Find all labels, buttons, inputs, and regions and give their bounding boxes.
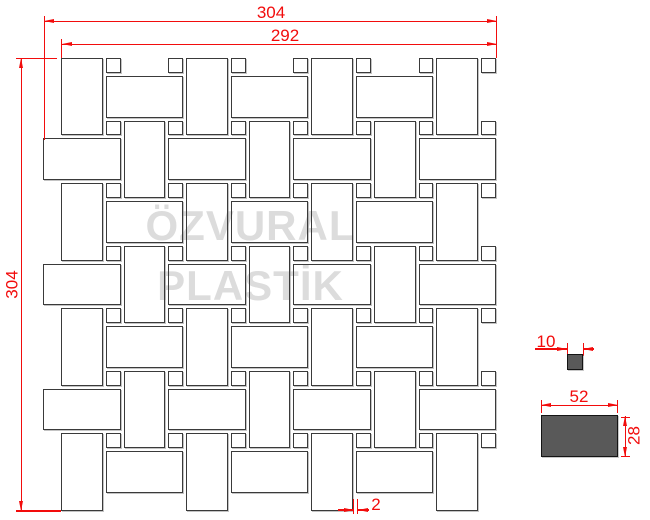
horizontal-tile bbox=[419, 389, 496, 431]
dot-tile bbox=[168, 58, 183, 73]
dot-tile bbox=[106, 58, 121, 73]
vertical-tile bbox=[124, 121, 166, 198]
dot-tile bbox=[106, 371, 121, 386]
dot-tile bbox=[231, 246, 246, 261]
extension-line bbox=[61, 39, 62, 58]
horizontal-tile bbox=[168, 138, 245, 180]
horizontal-tile bbox=[231, 76, 308, 118]
vertical-tile bbox=[436, 58, 478, 135]
horizontal-tile bbox=[293, 138, 370, 180]
extension-line bbox=[16, 58, 57, 59]
dot-tile bbox=[293, 371, 308, 386]
chip-shape bbox=[541, 415, 618, 457]
vertical-tile bbox=[436, 308, 478, 385]
arrowhead-right-icon bbox=[487, 42, 497, 46]
vertical-tile bbox=[186, 58, 228, 135]
horizontal-tile bbox=[231, 326, 308, 368]
dot-tile bbox=[231, 308, 246, 323]
dot-tile bbox=[419, 308, 434, 323]
horizontal-tile bbox=[356, 451, 433, 493]
horizontal-tile bbox=[293, 389, 370, 431]
dot-tile bbox=[293, 246, 308, 261]
extension-line bbox=[16, 510, 61, 511]
vertical-tile bbox=[374, 246, 416, 323]
vertical-tile bbox=[61, 58, 103, 135]
arrowhead-left-icon bbox=[62, 42, 72, 46]
dot-tile bbox=[168, 246, 183, 261]
dot-tile bbox=[168, 433, 183, 448]
horizontal-tile bbox=[293, 264, 370, 306]
dim-chip-height-label: 28 bbox=[626, 416, 643, 456]
dot-tile bbox=[231, 121, 246, 136]
vertical-tile bbox=[249, 246, 291, 323]
dot-tile bbox=[231, 371, 246, 386]
vertical-tile bbox=[311, 433, 353, 510]
horizontal-tile bbox=[106, 451, 183, 493]
vertical-tile bbox=[436, 433, 478, 510]
horizontal-tile bbox=[168, 264, 245, 306]
arrowhead-left-icon bbox=[358, 508, 368, 512]
dot-tile bbox=[481, 183, 496, 198]
dot-tile bbox=[356, 183, 371, 198]
horizontal-tile bbox=[419, 138, 496, 180]
dot-tile bbox=[106, 433, 121, 448]
vertical-tile bbox=[311, 183, 353, 260]
dot-tile bbox=[293, 308, 308, 323]
vertical-tile bbox=[186, 183, 228, 260]
dot-tile bbox=[481, 246, 496, 261]
vertical-tile bbox=[249, 121, 291, 198]
dot-tile bbox=[356, 371, 371, 386]
dim-overall-width-label: 304 bbox=[246, 4, 296, 21]
dot-tile bbox=[168, 371, 183, 386]
dot-tile bbox=[481, 433, 496, 448]
extension-line bbox=[496, 16, 497, 58]
arrowhead-right-icon bbox=[344, 508, 354, 512]
dot-tile bbox=[419, 371, 434, 386]
dot-tile bbox=[419, 183, 434, 198]
horizontal-tile bbox=[356, 201, 433, 243]
vertical-tile bbox=[186, 308, 228, 385]
horizontal-tile bbox=[168, 389, 245, 431]
dot-tile bbox=[293, 433, 308, 448]
dot-tile bbox=[356, 246, 371, 261]
dot-chip-shape bbox=[567, 354, 583, 370]
arrowhead-right-icon bbox=[608, 403, 618, 407]
dot-tile bbox=[356, 433, 371, 448]
dot-tile bbox=[293, 183, 308, 198]
vertical-tile bbox=[374, 371, 416, 448]
dot-tile bbox=[419, 246, 434, 261]
horizontal-tile bbox=[356, 76, 433, 118]
extension-line bbox=[621, 456, 631, 457]
vertical-tile bbox=[124, 371, 166, 448]
dot-tile bbox=[481, 308, 496, 323]
dot-tile bbox=[481, 121, 496, 136]
arrowhead-right-icon bbox=[487, 19, 497, 23]
arrowhead-left-icon bbox=[541, 403, 551, 407]
dot-tile bbox=[231, 433, 246, 448]
dot-tile bbox=[106, 121, 121, 136]
extension-line bbox=[353, 499, 354, 514]
dim-chip-width-label: 52 bbox=[566, 388, 592, 405]
dot-tile bbox=[419, 58, 434, 73]
horizontal-tile bbox=[231, 201, 308, 243]
extension-line bbox=[44, 16, 45, 140]
horizontal-tile bbox=[43, 138, 120, 180]
vertical-tile bbox=[61, 433, 103, 510]
vertical-tile bbox=[124, 246, 166, 323]
dim-inner-width-label: 292 bbox=[260, 27, 310, 44]
dot-tile bbox=[419, 433, 434, 448]
vertical-tile bbox=[311, 308, 353, 385]
extension-line bbox=[357, 499, 358, 514]
dim-dot-size-label: 10 bbox=[533, 333, 559, 350]
vertical-tile bbox=[374, 121, 416, 198]
horizontal-tile bbox=[106, 201, 183, 243]
horizontal-tile bbox=[43, 264, 120, 306]
dot-tile bbox=[356, 58, 371, 73]
dot-tile bbox=[106, 308, 121, 323]
dot-tile bbox=[481, 58, 496, 73]
horizontal-tile bbox=[419, 264, 496, 306]
dot-tile bbox=[231, 58, 246, 73]
vertical-tile bbox=[311, 58, 353, 135]
vertical-tile bbox=[61, 183, 103, 260]
dim-joint-gap-label: 2 bbox=[368, 496, 384, 513]
vertical-tile bbox=[436, 183, 478, 260]
extension-line bbox=[541, 400, 542, 413]
horizontal-tile bbox=[106, 326, 183, 368]
horizontal-tile bbox=[231, 451, 308, 493]
horizontal-tile bbox=[356, 326, 433, 368]
dot-tile bbox=[293, 121, 308, 136]
dim-overall-height-label: 304 bbox=[4, 260, 21, 310]
dot-tile bbox=[293, 58, 308, 73]
dot-tile bbox=[168, 121, 183, 136]
horizontal-tile bbox=[43, 389, 120, 431]
dot-tile bbox=[231, 183, 246, 198]
dot-tile bbox=[419, 121, 434, 136]
arrowhead-left-icon bbox=[44, 19, 54, 23]
technical-drawing-canvas: ÖZVURAL PLASTİK 304 292 304 2 bbox=[0, 0, 650, 520]
dot-tile bbox=[168, 183, 183, 198]
dot-tile bbox=[356, 308, 371, 323]
vertical-tile bbox=[61, 308, 103, 385]
dot-tile bbox=[356, 121, 371, 136]
arrowhead-left-icon bbox=[583, 347, 593, 351]
vertical-tile bbox=[186, 433, 228, 510]
dot-tile bbox=[106, 246, 121, 261]
dot-tile bbox=[106, 183, 121, 198]
dot-tile bbox=[168, 308, 183, 323]
vertical-tile bbox=[249, 371, 291, 448]
arrowhead-up-icon bbox=[19, 58, 23, 68]
extension-line bbox=[617, 400, 618, 413]
dot-tile bbox=[481, 371, 496, 386]
horizontal-tile bbox=[106, 76, 183, 118]
